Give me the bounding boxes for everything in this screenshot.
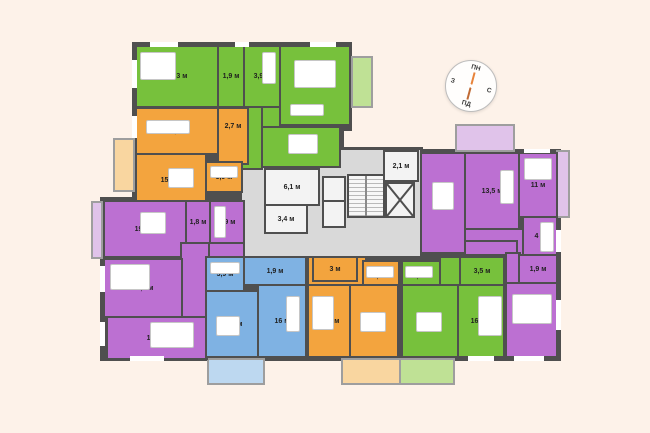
table: [360, 312, 386, 332]
bathtub: [210, 166, 238, 178]
elevator: [385, 182, 415, 218]
room-a4-hall[interactable]: 1,9 м: [243, 256, 307, 286]
room-a5-wc[interactable]: 3 м: [312, 256, 358, 282]
bed: [110, 264, 150, 290]
room-area-label: 6,1 м: [284, 184, 301, 191]
room-a7-wc[interactable]: 1,9 м: [518, 254, 558, 284]
table: [140, 212, 166, 234]
window: [310, 42, 336, 47]
bed: [150, 322, 194, 348]
room-area-label: 3 м: [329, 266, 340, 273]
bathtub: [262, 52, 276, 84]
window: [150, 42, 178, 47]
shaft: [322, 176, 346, 202]
stair-flight: [349, 176, 366, 216]
window: [132, 116, 137, 138]
bed: [312, 296, 334, 330]
sofa: [500, 170, 514, 204]
balcony: [341, 358, 401, 385]
room-area-label: 2,1 м: [393, 163, 410, 170]
room-a3-wc[interactable]: 1,8 м: [185, 200, 211, 244]
core-vestibule: 2,1 м: [383, 150, 419, 182]
bathtub: [214, 206, 226, 238]
sofa: [146, 120, 190, 134]
sofa: [286, 296, 300, 332]
room-area-label: 11 м: [531, 182, 546, 189]
table: [288, 134, 318, 154]
sofa: [290, 104, 324, 116]
bed: [512, 294, 552, 324]
bathtub: [405, 266, 433, 278]
room-area-label: 1,9 м: [223, 73, 240, 80]
compass-east-label: С: [486, 87, 492, 95]
bathtub: [210, 262, 240, 274]
table: [216, 316, 240, 336]
core-hall: 3,4 м: [264, 204, 308, 234]
bed: [478, 296, 502, 336]
bathtub: [366, 266, 394, 278]
room-area-label: 2,7 м: [225, 123, 242, 130]
room-area-label: 3,4 м: [278, 216, 295, 223]
bed: [524, 158, 552, 180]
room-area-label: 1,9 м: [267, 268, 284, 275]
window: [524, 149, 550, 153]
window: [556, 230, 561, 252]
room-a1-wc[interactable]: 1,9 м: [217, 45, 245, 108]
shaft: [322, 200, 346, 228]
compass-west-label: З: [450, 77, 456, 85]
table: [416, 312, 442, 332]
staircase: [347, 174, 385, 218]
compass-rose: ПН С ПД З: [445, 60, 497, 112]
room-area-label: 1,9 м: [530, 266, 547, 273]
room-a6-wardrobe[interactable]: 3,5 м: [459, 256, 505, 286]
table: [168, 168, 194, 188]
window: [556, 300, 561, 330]
balcony: [399, 358, 455, 385]
compass-north-label: ПН: [470, 64, 481, 73]
balcony: [207, 358, 265, 385]
floor-plan: 16,3 м 1,9 м 3,9 м 22,5 м 16,3 м 16,7 м …: [0, 0, 650, 433]
window: [132, 60, 137, 88]
window: [468, 356, 494, 361]
balcony: [455, 124, 515, 152]
window: [100, 266, 105, 292]
window: [514, 356, 544, 361]
room-a2-hall[interactable]: 2,7 м: [217, 107, 249, 165]
balcony: [556, 150, 570, 218]
compass-south-label: ПД: [461, 99, 472, 108]
compass-dial: ПН С ПД З: [440, 55, 501, 116]
room-area-label: 1,8 м: [190, 219, 207, 226]
balcony: [113, 138, 135, 192]
window: [130, 356, 164, 361]
window: [235, 42, 249, 47]
window: [100, 322, 105, 346]
balcony: [351, 56, 373, 108]
stair-flight: [366, 176, 383, 216]
compass-needle-icon: [466, 72, 475, 100]
core-hall: 6,1 м: [264, 168, 320, 206]
bed: [294, 60, 336, 88]
bed: [140, 52, 176, 80]
elevator-x-icon: [387, 184, 413, 216]
bathtub: [540, 222, 554, 252]
room-area-label: 3,5 м: [474, 268, 491, 275]
table: [432, 182, 454, 210]
balcony: [91, 201, 103, 259]
